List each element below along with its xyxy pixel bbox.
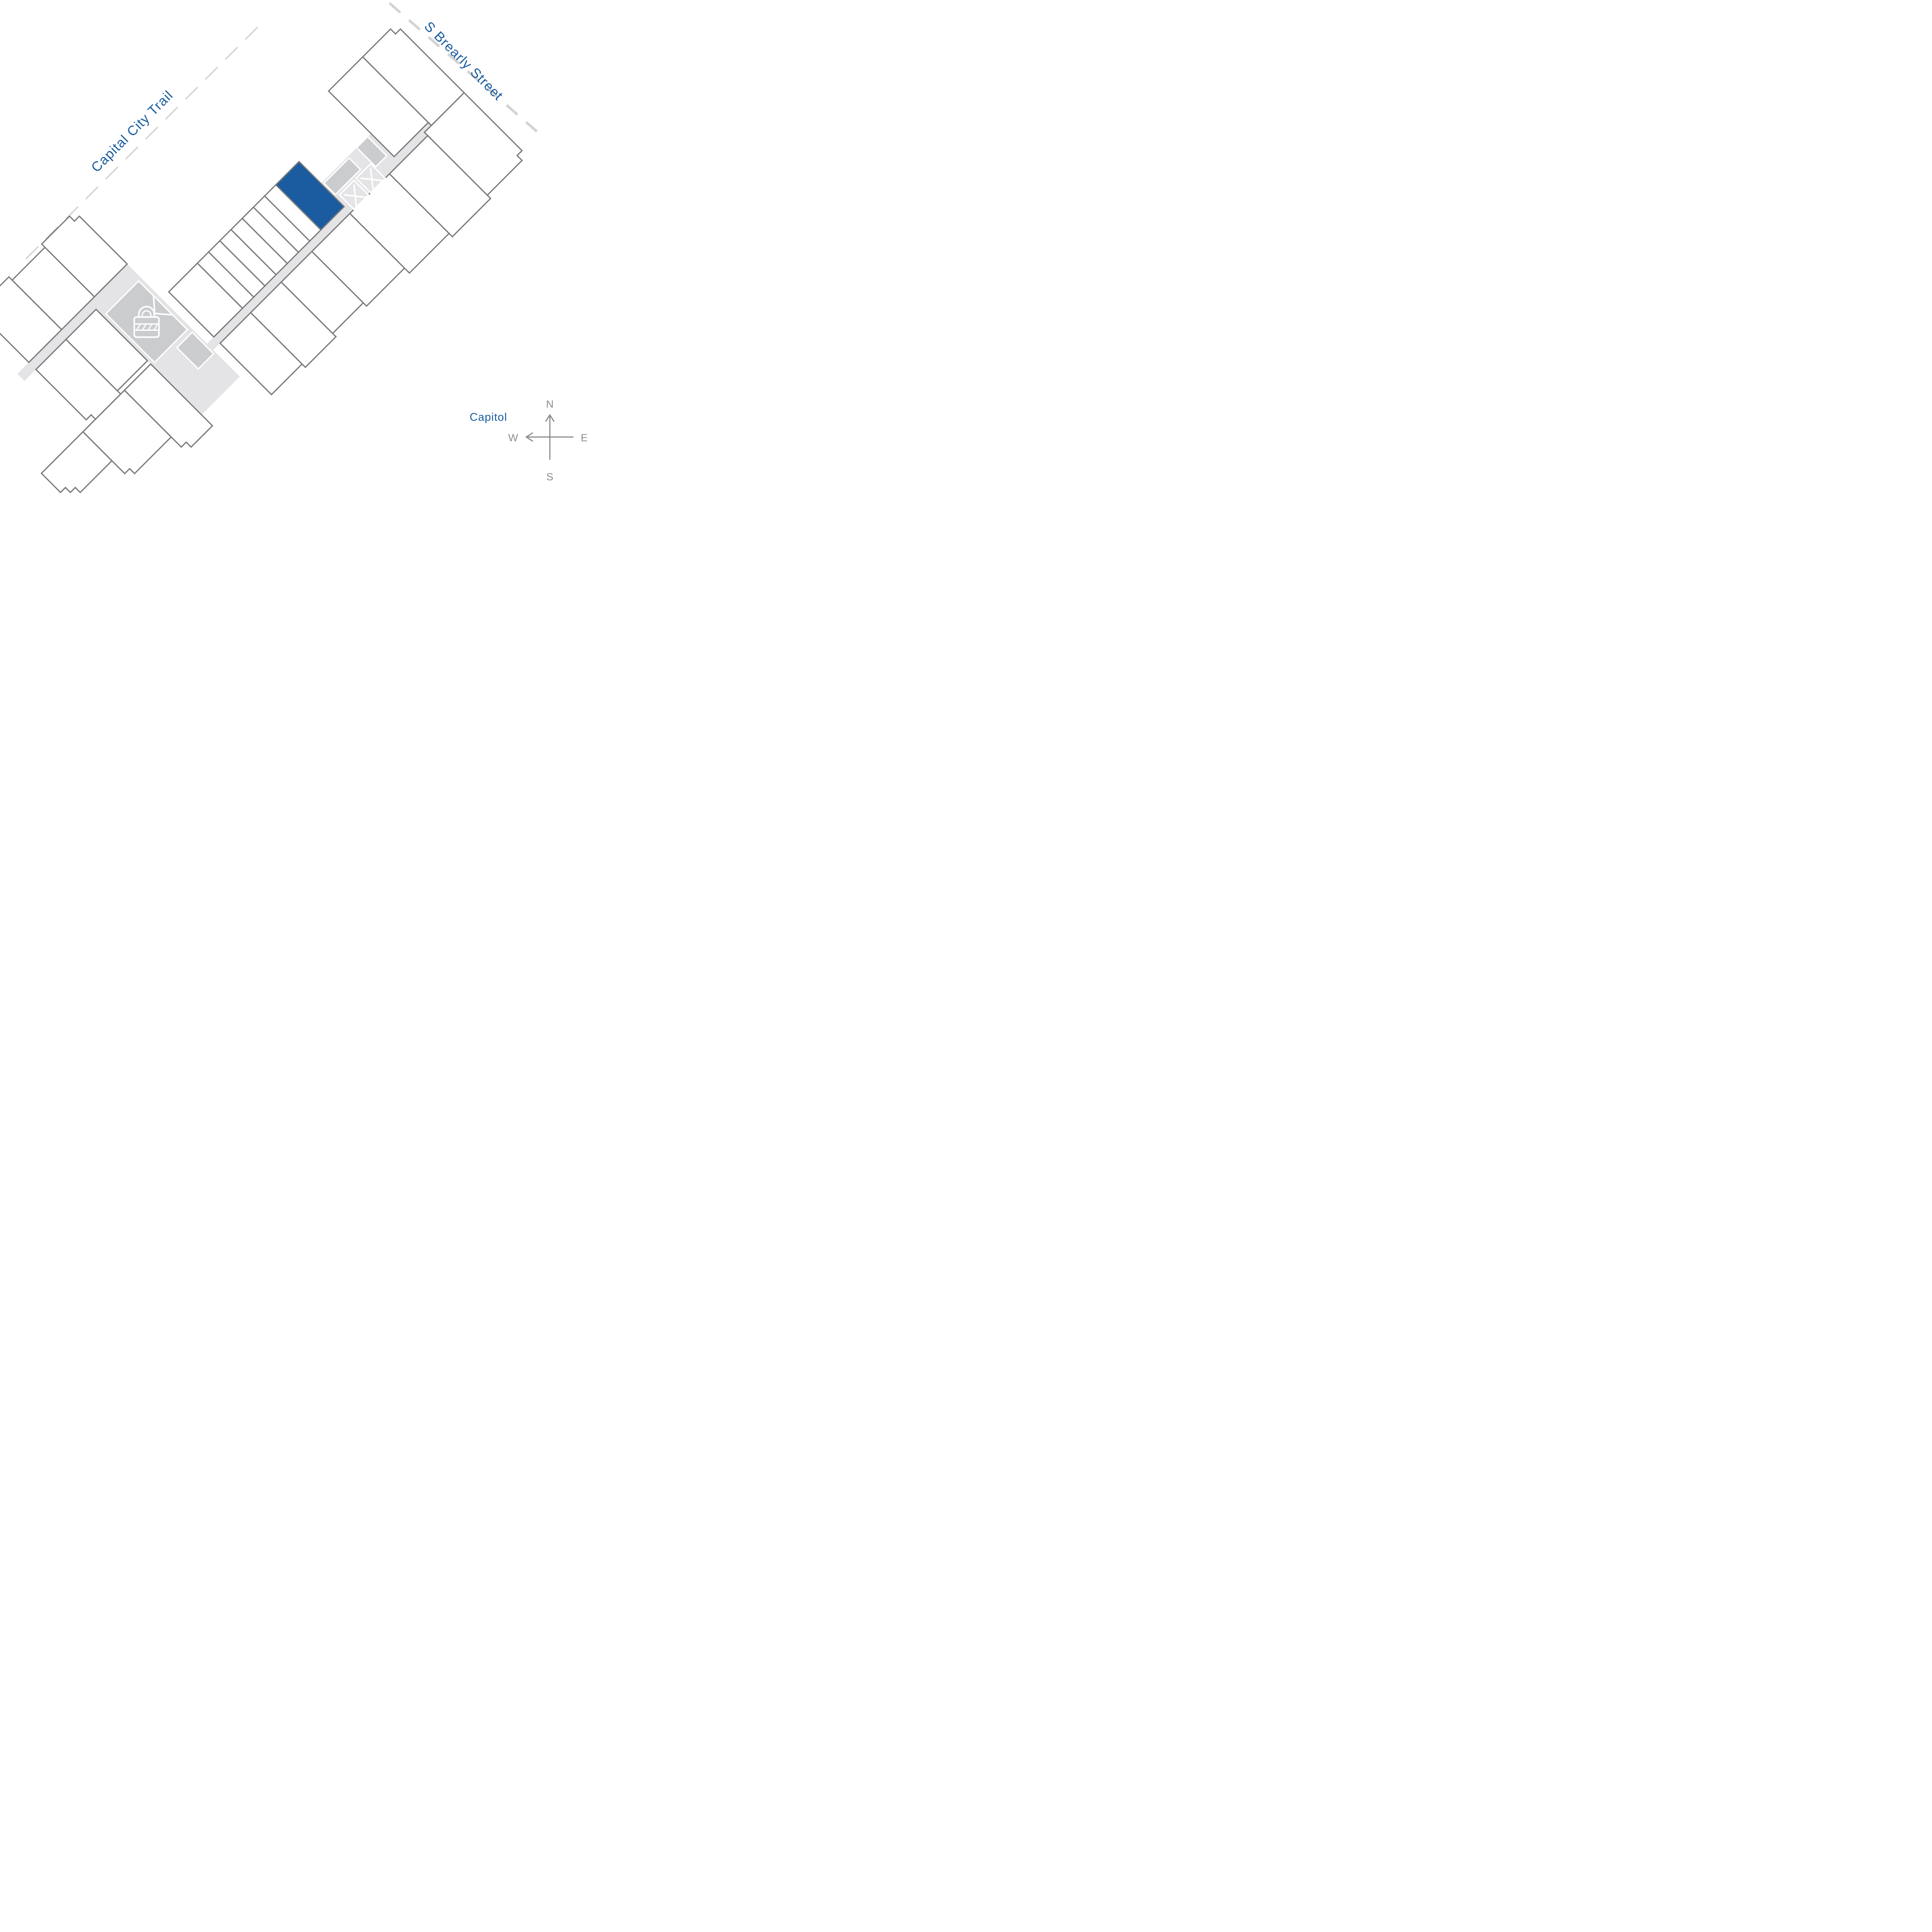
compass-letter-w: W [508,432,518,444]
site-plan-canvas: Capital City Trail S Brearly Street Capi… [0,0,587,503]
compass-letter-n: N [546,398,554,410]
trail-label: Capital City Trail [88,88,176,175]
site-map: Capital City Trail S Brearly Street Capi… [0,0,587,503]
building-floor-plan [0,0,530,503]
compass-letter-e: E [581,432,587,444]
capital-city-trail-line [26,24,261,259]
compass: N S W E [508,398,587,483]
compass-letter-s: S [546,471,553,483]
area-label-capitol: Capitol [469,411,507,423]
